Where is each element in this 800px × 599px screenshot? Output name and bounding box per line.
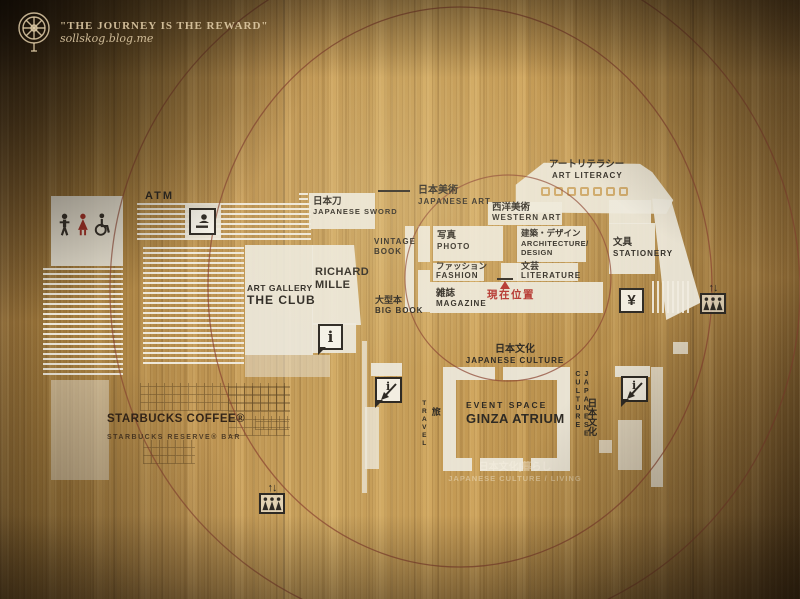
photo-label-en: PHOTO	[437, 242, 470, 252]
stripes-block-right	[652, 281, 690, 313]
japanese-culture-label-en: JAPANESE CULTURE	[450, 356, 580, 366]
art-gallery-label: ART GALLERY	[247, 283, 313, 293]
photo-label-ja: 写真	[437, 230, 456, 241]
vintage-book-label: VINTAGE BOOK	[374, 237, 416, 256]
stationery-label-en: STATIONERY	[613, 249, 673, 259]
escalator-stripes-block	[43, 268, 123, 378]
shelf-strip	[618, 420, 642, 470]
cafe-edge-block	[245, 355, 330, 377]
elevator-arrows: ↑↓	[700, 283, 726, 293]
current-location-label: 現在位置	[487, 289, 535, 302]
small-block	[673, 342, 688, 354]
currency-exchange-icon: ¥	[619, 288, 644, 313]
japanese-art-label-ja: 日本美術	[418, 185, 458, 197]
atrium-frame	[443, 367, 495, 380]
japanese-sword-label-en: JAPANESE SWORD	[313, 207, 398, 216]
stationery-label-ja: 文具	[613, 237, 632, 248]
japanese-sword-label-ja: 日本刀	[313, 196, 342, 207]
icon-tail	[318, 347, 326, 355]
starbucks-reserve-label: STARBUCKS RESERVE® BAR	[107, 434, 241, 442]
big-book-label-en: BIG BOOK	[375, 306, 423, 316]
travel-label-en: TRAVEL	[420, 400, 428, 444]
register-icon: i	[375, 377, 402, 403]
the-club-label: THE CLUB	[247, 293, 316, 307]
culture-living-ghost-en: JAPANESE CULTURE / LIVING	[432, 474, 598, 483]
sword-stripe	[299, 193, 308, 229]
counter-block	[371, 363, 402, 376]
art-literacy-label-ja: アートリテラシー	[549, 159, 624, 170]
elevator-icon: ↑↓	[259, 483, 285, 514]
architecture-label-en: ARCHITECTURE/ DESIGN	[521, 239, 589, 257]
atm-label: ATM	[145, 190, 174, 203]
japanese-art-label-en: JAPANESE ART	[418, 197, 491, 207]
elevator-icon: ↑↓	[700, 283, 726, 314]
register-icon: i	[621, 376, 648, 402]
ginza-atrium-label: GINZA ATRIUM	[466, 411, 565, 427]
starbucks-label: STARBUCKS COFFEE®	[107, 413, 245, 427]
label-connector-line	[378, 190, 410, 192]
elevator-box	[259, 493, 285, 514]
art-literacy-label-en: ART LITERACY	[552, 171, 623, 181]
western-art-label-en: WESTERN ART	[492, 213, 561, 223]
current-location-marker	[500, 281, 510, 289]
men-icon	[60, 214, 70, 236]
blog-watermark: "THE JOURNEY IS THE REWARD" sollskog.blo…	[16, 10, 269, 54]
wheel-logo-icon	[16, 10, 52, 54]
magazine-label-en: MAGAZINE	[436, 299, 487, 309]
current-location-tick	[497, 278, 513, 280]
shelf-strip	[365, 407, 379, 469]
richard-mille-label: RICHARD MILLE	[315, 266, 369, 292]
atrium-frame	[443, 380, 456, 458]
literature-label-en: LITERATURE	[521, 271, 581, 281]
western-art-label-ja: 西洋美術	[492, 202, 530, 213]
shelf-strip	[418, 226, 430, 262]
travel-label-ja: 旅	[430, 407, 441, 416]
elevator-arrows: ↑↓	[259, 483, 285, 493]
elevator-box	[700, 293, 726, 314]
icon-tail	[375, 400, 383, 408]
stationery-upper-block	[609, 200, 651, 224]
starbucks-area-block	[51, 380, 109, 480]
fashion-label-en: FASHION	[436, 271, 479, 281]
culture-living-ghost-ja: 日本文化|暮らし	[445, 462, 585, 474]
japanese-culture-side-label-ja: 日本文化	[585, 398, 596, 448]
stripes-block-mid	[143, 247, 244, 367]
magazine-label-ja: 雑誌	[436, 288, 455, 299]
big-book-label-ja: 大型本	[375, 295, 402, 306]
shelf-stripes-band	[137, 203, 311, 240]
watermark-blog-url: sollskog.blog.me	[60, 32, 269, 45]
wood-wall-floor-map-photo: ATM 日本刀 JAPANESE SWORD 日本美術 JAPANESE ART…	[0, 0, 800, 599]
bookshelf-outlines	[541, 187, 628, 196]
atm-icon	[189, 208, 216, 235]
yen-glyph: ¥	[627, 292, 635, 309]
atrium-frame	[503, 367, 570, 380]
icon-tail	[621, 399, 629, 407]
women-icon	[78, 214, 88, 236]
event-space-label: EVENT SPACE	[466, 400, 547, 410]
furniture-outlines	[143, 440, 195, 464]
japanese-culture-label-ja: 日本文化	[450, 344, 580, 356]
watermark-quote: "THE JOURNEY IS THE REWARD"	[60, 20, 269, 32]
information-icon: i	[318, 324, 343, 350]
fashion-label-ja: ファッション	[436, 261, 487, 271]
aisle-line	[651, 367, 663, 487]
wheelchair-icon	[96, 213, 109, 234]
small-block	[599, 440, 612, 453]
architecture-label-ja: 建築・デザイン	[521, 228, 581, 238]
furniture-outlines	[255, 416, 289, 430]
information-icon-glyph: i	[328, 328, 334, 346]
restroom-icons	[57, 208, 111, 242]
